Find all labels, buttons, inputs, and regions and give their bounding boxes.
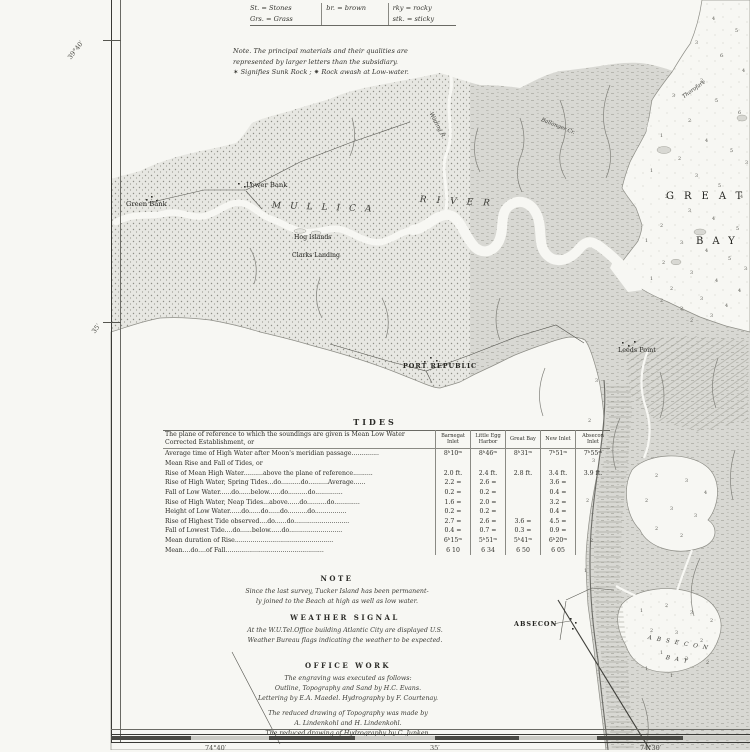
note-section: NOTE Since the last survey, Tucker Islan…: [232, 574, 442, 607]
depth-sounding: 2: [662, 262, 665, 267]
tide-row: Fall of Low Water......do......below....…: [163, 488, 610, 498]
depth-sounding: 5: [718, 185, 721, 190]
key-cell: [321, 14, 387, 25]
depth-sounding: 3: [690, 272, 693, 277]
depth-sounding: 2: [645, 500, 648, 505]
office-heading: OFFICE WORK: [228, 661, 468, 670]
depth-sounding: 2: [655, 475, 658, 480]
depth-sounding: 4: [705, 250, 708, 255]
depth-sounding: 1: [645, 668, 648, 673]
weather-line: Weather Bureau flags indicating the weat…: [225, 636, 465, 646]
depth-sounding: 2: [706, 662, 709, 667]
tide-row: Mean Rise and Fall of Tides, or: [163, 459, 610, 469]
weather-signal-section: WEATHER SIGNAL At the W.U.Tel.Office bui…: [225, 613, 465, 646]
depth-sounding: 3: [680, 242, 683, 247]
key-cell: br. = brown: [321, 3, 387, 14]
depth-sounding: 2: [660, 300, 663, 305]
note-heading: NOTE: [232, 574, 442, 583]
border-bar: [519, 736, 597, 740]
latitude-tick: [103, 40, 121, 41]
depth-sounding: 6: [720, 55, 723, 60]
office-line: A. Lindenkohl and H. Lindenkohl.: [228, 719, 468, 729]
depth-sounding: 3: [745, 162, 748, 167]
depth-sounding: 2: [685, 658, 688, 663]
depth-sounding: 3: [685, 480, 688, 485]
materials-key: St. = Stones br. = brown rky = rocky Grs…: [250, 3, 456, 26]
bottom-border-bars: [111, 736, 750, 740]
office-line: The reduced drawing of Topography was ma…: [228, 709, 468, 719]
office-line: Outline, Topography and Sand by H.C. Eva…: [228, 684, 468, 694]
depth-sounding: 2: [680, 308, 683, 313]
depth-sounding: 4: [740, 196, 743, 201]
depth-sounding: 3: [670, 508, 673, 513]
depth-sounding: 3: [690, 612, 693, 617]
note-line: Since the last survey, Tucker Island has…: [232, 587, 442, 597]
depth-sounding: 3: [672, 95, 675, 100]
depth-sounding: 4: [742, 70, 745, 75]
bottom-border-top: [111, 734, 750, 735]
border-bar: [355, 736, 435, 740]
materials-note-line: represented by larger letters than the s…: [233, 57, 463, 68]
depth-sounding: 4: [725, 305, 728, 310]
border-bar: [435, 736, 519, 740]
materials-note-line: Note. The principal materials and their …: [233, 46, 463, 57]
depth-sounding: 5: [715, 100, 718, 105]
depth-sounding: 6: [738, 112, 741, 117]
left-neatline-outer: [111, 0, 112, 742]
depth-sounding: 3: [744, 268, 747, 273]
tide-row: Mean....do....of Fall...................…: [163, 546, 610, 556]
depth-sounding: 2: [690, 320, 693, 325]
depth-sounding: 1: [670, 675, 673, 680]
depth-sounding: 3: [688, 210, 691, 215]
depth-sounding: 2: [588, 420, 591, 425]
depth-sounding: 5: [736, 228, 739, 233]
depth-sounding: 2: [665, 605, 668, 610]
depth-sounding: 5: [735, 30, 738, 35]
tide-row: Average time of High Water after Moon's …: [163, 449, 610, 459]
depth-sounding: 4: [712, 18, 715, 23]
depth-sounding: 2: [670, 288, 673, 293]
depth-sounding: 4: [738, 290, 741, 295]
weather-line: At the W.U.Tel.Office building Atlantic …: [225, 626, 465, 636]
depth-sounding: 3: [694, 515, 697, 520]
border-bar: [191, 736, 269, 740]
depth-sounding: 3: [700, 298, 703, 303]
key-cell: stk. = sticky: [388, 14, 456, 25]
depth-sounding: 3: [710, 315, 713, 320]
depth-sounding: 4: [705, 140, 708, 145]
tides-header-row: The plane of reference to which the soun…: [163, 431, 610, 449]
longitude-label-mid: 35′: [430, 744, 440, 752]
tide-row: Fall of Lowest Tide....do......below....…: [163, 526, 610, 536]
tides-section: TIDES The plane of reference to which th…: [163, 417, 587, 555]
depth-sounding: 3: [595, 380, 598, 385]
depth-sounding: 1: [584, 570, 587, 575]
depth-sounding: 2: [700, 80, 703, 85]
note-line: ly joined to the Beach at high as well a…: [232, 597, 442, 607]
border-bar: [683, 736, 750, 740]
key-cell: Grs. = Grass: [250, 14, 321, 25]
depth-sounding: 2: [660, 225, 663, 230]
depth-sounding: 2: [678, 158, 681, 163]
depth-sounding: 1: [660, 652, 663, 657]
depth-sounding: 2: [650, 630, 653, 635]
depth-sounding: 4: [712, 218, 715, 223]
border-bar: [111, 736, 191, 740]
depth-sounding: 1: [660, 135, 663, 140]
depth-sounding: 5: [728, 258, 731, 263]
depth-sounding: 2: [680, 535, 683, 540]
tide-row: Rise of Highest Tide observed....do.....…: [163, 517, 610, 527]
border-bar: [597, 736, 683, 740]
bottom-neatline-inner: [111, 729, 750, 730]
office-work-section: OFFICE WORK The engraving was executed a…: [228, 661, 468, 739]
depth-sounding: 2: [710, 620, 713, 625]
tide-row: Mean duration of Rise...................…: [163, 536, 610, 546]
longitude-label-right: 74°30′: [640, 744, 661, 752]
left-neatline-inner: [120, 0, 121, 742]
tides-table: The plane of reference to which the soun…: [163, 430, 610, 555]
tide-row: Rise of High Water, Spring Tides...do...…: [163, 478, 610, 488]
latitude-tick: [103, 322, 121, 323]
depth-sounding: 1: [650, 278, 653, 283]
weather-heading: WEATHER SIGNAL: [225, 613, 465, 622]
depth-sounding: 4: [704, 492, 707, 497]
tide-row: Rise of Mean High Water..........above t…: [163, 468, 610, 478]
depth-sounding: 4: [715, 280, 718, 285]
depth-sounding: 1: [645, 240, 648, 245]
materials-note-line: ✶ Signifies Sunk Rock ; ✷ Rock awash at …: [233, 67, 463, 78]
bottom-border-bottom: [111, 742, 750, 743]
materials-note: Note. The principal materials and their …: [233, 46, 463, 78]
depth-sounding: 2: [665, 196, 668, 201]
key-cell: St. = Stones: [250, 3, 321, 14]
depth-sounding: 3: [695, 42, 698, 47]
office-line: The engraving was executed as follows:: [228, 674, 468, 684]
tides-title: TIDES: [163, 417, 587, 427]
office-line: Lettering by E.A. Maedel. Hydrography by…: [228, 694, 468, 704]
depth-sounding: 3: [695, 175, 698, 180]
depth-sounding: 3: [675, 632, 678, 637]
longitude-label-left: 74°40′: [205, 744, 226, 752]
tide-row: Height of Low Water......do......do.....…: [163, 507, 610, 517]
depth-sounding: 1: [640, 610, 643, 615]
depth-sounding: 5: [730, 150, 733, 155]
depth-sounding: 2: [655, 528, 658, 533]
tide-row: Rise of High Water, Neap Tides...above..…: [163, 497, 610, 507]
border-bar: [269, 736, 355, 740]
depth-sounding: 2: [700, 640, 703, 645]
depth-sounding: 2: [688, 120, 691, 125]
key-cell: rky = rocky: [388, 3, 456, 14]
depth-sounding: 1: [650, 170, 653, 175]
nautical-chart-sheet: { "materials_key": { "rows": [ ["St. = S…: [0, 0, 750, 750]
